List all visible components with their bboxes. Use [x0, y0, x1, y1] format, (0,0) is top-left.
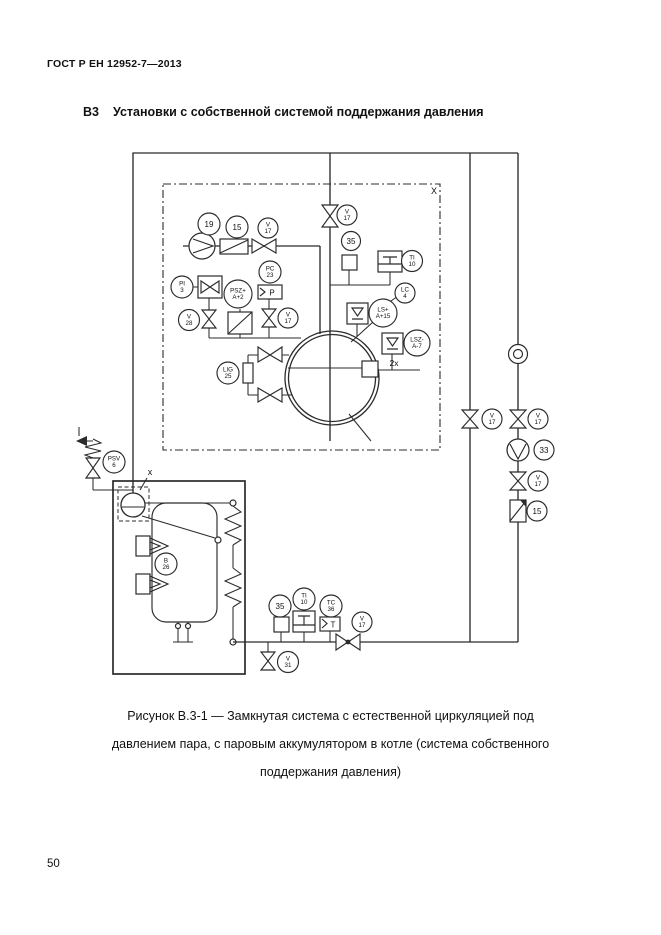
burner-b-26-label: 26: [163, 564, 170, 571]
valve-v17-circ-upper-label: 17: [535, 419, 542, 426]
sampler-box-bottom: [274, 617, 289, 632]
tc-box-letter: T: [331, 621, 336, 630]
thermometer-ti-10-top-label: 10: [409, 261, 416, 268]
valve-v17-steam-label: 17: [344, 215, 351, 222]
coil-top-junction: [230, 500, 236, 506]
relief-valve-body: [86, 458, 100, 478]
piping-diagram: 1915V17V1735TI10PI3PSZ+A+2PC23V28V17LIG2…: [0, 0, 661, 935]
temp-controller-tc-36-label: 36: [328, 606, 335, 613]
shutoff-valves: [202, 205, 526, 670]
valve-v17-pc-label: 17: [285, 318, 292, 325]
strainer-15-circ-label: 15: [533, 507, 542, 516]
gauge-glass: [243, 363, 253, 383]
furnace-stub-1: [176, 624, 181, 629]
riser-junction: [215, 537, 221, 543]
level-limiter-lsz-a7-label: A-7: [412, 343, 422, 350]
shell-boiler: [113, 478, 245, 674]
level-pocket: [362, 361, 378, 377]
sampler-35-bottom-label: 35: [276, 602, 285, 611]
heating-coil-upper: [225, 506, 241, 545]
caption-line-3: поддержания давления): [0, 758, 661, 786]
spring: [85, 439, 101, 458]
page-number: 50: [47, 858, 60, 870]
circulation-pump-33-label: 33: [540, 446, 549, 455]
valve-v31-drain-label: 31: [285, 662, 292, 669]
caption-line-2: давлением пара, с паровым аккумулятором …: [0, 730, 661, 758]
level-switch-ls-a15-label: A+15: [376, 313, 391, 320]
boiler-drum-label: x: [148, 467, 153, 477]
system-boundary-label: X: [431, 186, 437, 196]
document-page: ГОСТ Р ЕН 12952-7—2013 В3Установки с соб…: [0, 0, 661, 935]
valve-v17-bypass-label: 17: [489, 419, 496, 426]
level-controller-lc-4-label: 4: [403, 293, 407, 300]
pc-box-letter: P: [269, 289, 274, 298]
sight-glass-outer: [509, 345, 528, 364]
pressure-limiter-psz-label: A+2: [232, 294, 244, 301]
valve-v17-feed-label: 17: [265, 228, 272, 235]
control-valve-dot: [346, 640, 351, 645]
valve-v28-label: 28: [186, 320, 193, 327]
thermometer-ti-10-bottom-label: 10: [301, 599, 308, 606]
feed-pump-symbol: [189, 233, 215, 259]
valve-v17-return-label: 17: [359, 622, 366, 629]
strainer-15-feed-label: 15: [233, 223, 242, 232]
burner-box-2: [136, 574, 150, 594]
sampler-box-top: [342, 255, 357, 270]
figure-caption: Рисунок В.3-1 — Замкнутая система с есте…: [0, 702, 661, 786]
instrument-bubbles: 1915V17V1735TI10PI3PSZ+A+2PC23V28V17LIG2…: [103, 205, 554, 673]
dual-connection-label: 2x: [390, 358, 400, 368]
heating-coil-lower: [225, 568, 241, 607]
furnace-stub-2: [186, 624, 191, 629]
safety-valve-psv-6-label: 6: [112, 462, 116, 469]
level-gauge-lig-25-label: 25: [225, 373, 232, 380]
circulation-pump-symbol: [507, 439, 529, 461]
pump-19-label: 19: [205, 220, 214, 229]
sampler-35-top-label: 35: [347, 237, 356, 246]
burner-box-1: [136, 536, 150, 556]
discharge-arrow: [76, 436, 87, 446]
caption-line-1: Рисунок В.3-1 — Замкнутая система с есте…: [0, 702, 661, 730]
boiler-steam-drum: [121, 493, 145, 517]
valve-v17-circ-lower-label: 17: [535, 481, 542, 488]
pressure-controller-pc-23-label: 23: [267, 272, 274, 279]
accumulator-drum: [285, 331, 379, 425]
gauge-pi-3-label: 3: [180, 287, 184, 294]
ls-box: [347, 303, 368, 324]
lsz-box: [382, 333, 403, 354]
